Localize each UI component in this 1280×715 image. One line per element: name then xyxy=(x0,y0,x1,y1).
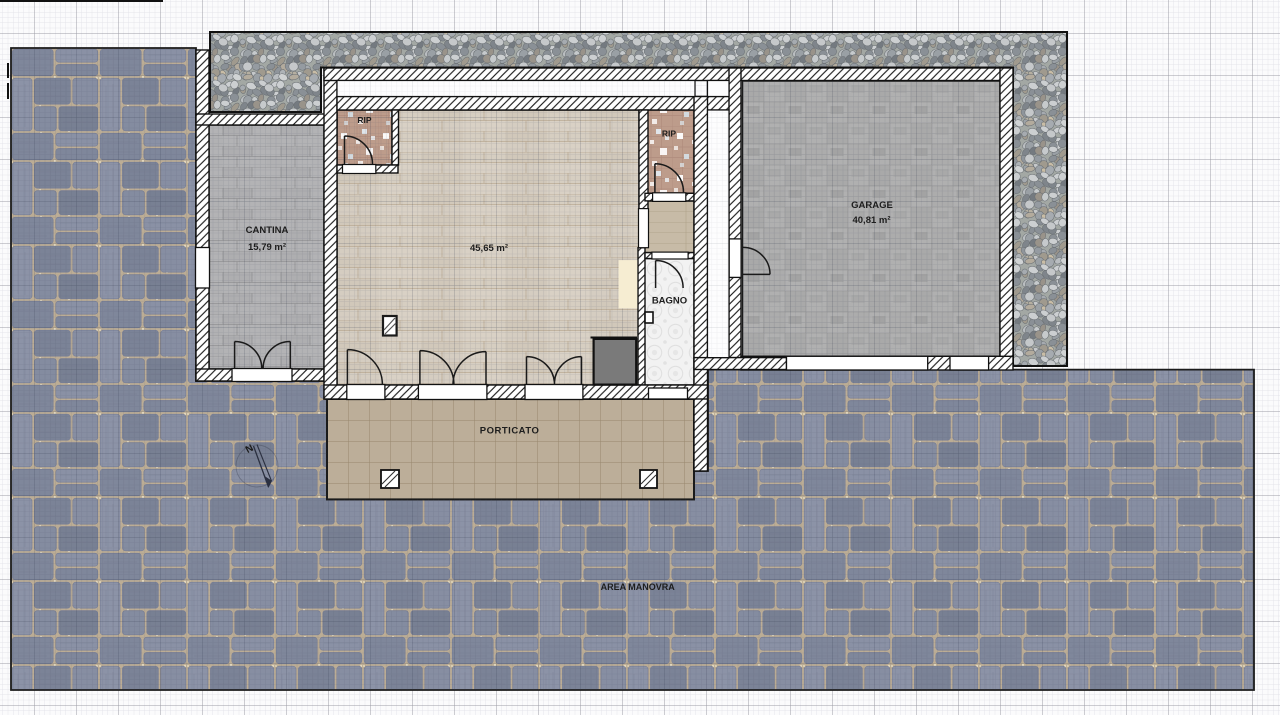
svg-text:RIP: RIP xyxy=(357,115,372,125)
svg-text:15,79 m²: 15,79 m² xyxy=(248,242,286,253)
svg-text:RIP: RIP xyxy=(662,129,677,139)
svg-text:BAGNO: BAGNO xyxy=(652,296,687,307)
svg-text:40,81 m²: 40,81 m² xyxy=(852,215,890,226)
svg-text:45,65 m²: 45,65 m² xyxy=(470,243,508,254)
svg-text:CANTINA: CANTINA xyxy=(246,225,289,236)
svg-text:AREA MANOVRA: AREA MANOVRA xyxy=(601,582,676,592)
svg-text:PORTICATO: PORTICATO xyxy=(480,426,540,437)
svg-text:GARAGE: GARAGE xyxy=(851,200,893,211)
